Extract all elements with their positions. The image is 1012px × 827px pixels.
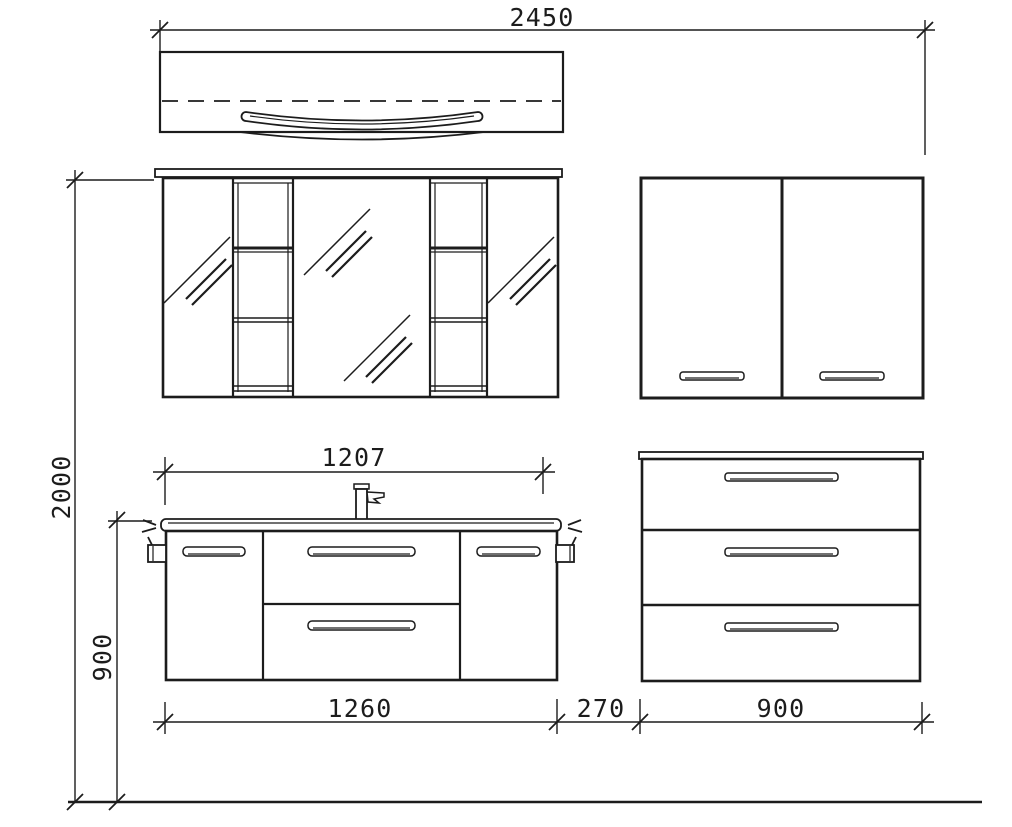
vanity-left-side-knob — [148, 545, 166, 562]
drawer-cabinet-body — [642, 459, 920, 681]
dimension-label-total-width: 2450 — [509, 3, 574, 32]
shine-line — [568, 528, 582, 532]
hatch-line — [164, 237, 230, 303]
faucet-spout — [367, 492, 384, 503]
faucet — [354, 484, 384, 521]
hatch-line — [326, 231, 366, 271]
technical-drawing-bathroom-furniture: 2450 2000 900 — [0, 0, 1012, 827]
dimension-total-height: 2000 — [47, 170, 154, 810]
hatch-line — [192, 265, 232, 305]
hatch-line — [372, 343, 412, 383]
light-canopy — [160, 52, 563, 140]
handle-bar — [725, 548, 838, 556]
knob-body — [148, 545, 166, 562]
mirror-hatch-center-upper — [304, 209, 372, 277]
vanity-bottom-drawer-handle — [308, 621, 415, 630]
drawer-cabinet — [639, 452, 923, 681]
handle-bar — [308, 621, 415, 630]
dimension-label-side-cabinet-width: 900 — [757, 694, 806, 723]
handle-bar — [725, 473, 838, 481]
drawing-canvas: 2450 2000 900 — [0, 0, 1012, 827]
handle-bar — [820, 372, 884, 380]
mirror-cabinet — [155, 169, 562, 397]
knob-body — [556, 545, 574, 562]
hatch-line — [186, 259, 226, 299]
drawer-handle-bottom — [725, 623, 838, 631]
wall-cabinet-right-handle — [820, 372, 884, 380]
mirror-hatch-center-lower — [344, 315, 412, 383]
shine-marks-right — [568, 520, 582, 545]
hatch-line — [516, 265, 556, 305]
hatch-line — [488, 237, 554, 303]
handle-bar — [725, 623, 838, 631]
mirror-cabinet-top-strip — [155, 169, 562, 177]
mirror-hatch-left-door — [164, 237, 232, 305]
wall-cabinet — [641, 178, 923, 398]
faucet-stem — [356, 489, 367, 521]
dimension-label-spacer-width: 270 — [577, 694, 626, 723]
curved-light-bar — [242, 112, 483, 130]
dimension-vanity-height: 900 — [88, 511, 152, 810]
drawer-handle-top — [725, 473, 838, 481]
dimension-label-washbasin-width: 1207 — [321, 443, 386, 472]
shine-line — [142, 528, 156, 532]
hatch-line — [366, 337, 406, 377]
drawer-handle-middle — [725, 548, 838, 556]
hatch-line — [510, 259, 550, 299]
hatch-line — [344, 315, 410, 381]
shine-line — [572, 537, 576, 545]
vanity-unit — [142, 484, 582, 680]
shine-marks-left — [142, 520, 156, 545]
shelf-column-left — [233, 183, 293, 392]
washbasin-top — [161, 519, 561, 531]
dimension-label-total-height: 2000 — [47, 454, 76, 519]
shine-line — [148, 537, 152, 545]
hatch-line — [332, 237, 372, 277]
dimension-label-vanity-height: 900 — [88, 633, 117, 682]
hatch-line — [304, 209, 370, 275]
vanity-right-side-knob — [556, 545, 574, 562]
mirror-hatch-right-door — [488, 237, 556, 305]
wall-cabinet-left-handle — [680, 372, 744, 380]
handle-bar — [183, 547, 245, 556]
canopy-bottom-curve — [240, 132, 484, 140]
shelf-column-right — [430, 183, 487, 392]
vanity-top-drawer-handle — [308, 547, 415, 556]
dimension-bottom-chain: 1260 270 900 — [153, 694, 934, 734]
dimension-washbasin-width: 1207 — [153, 443, 555, 505]
vanity-left-door-handle — [183, 547, 245, 556]
shine-line — [568, 520, 581, 525]
handle-bar — [477, 547, 540, 556]
vanity-right-door-handle — [477, 547, 540, 556]
handle-bar — [680, 372, 744, 380]
handle-bar — [308, 547, 415, 556]
dimension-label-vanity-width: 1260 — [327, 694, 392, 723]
